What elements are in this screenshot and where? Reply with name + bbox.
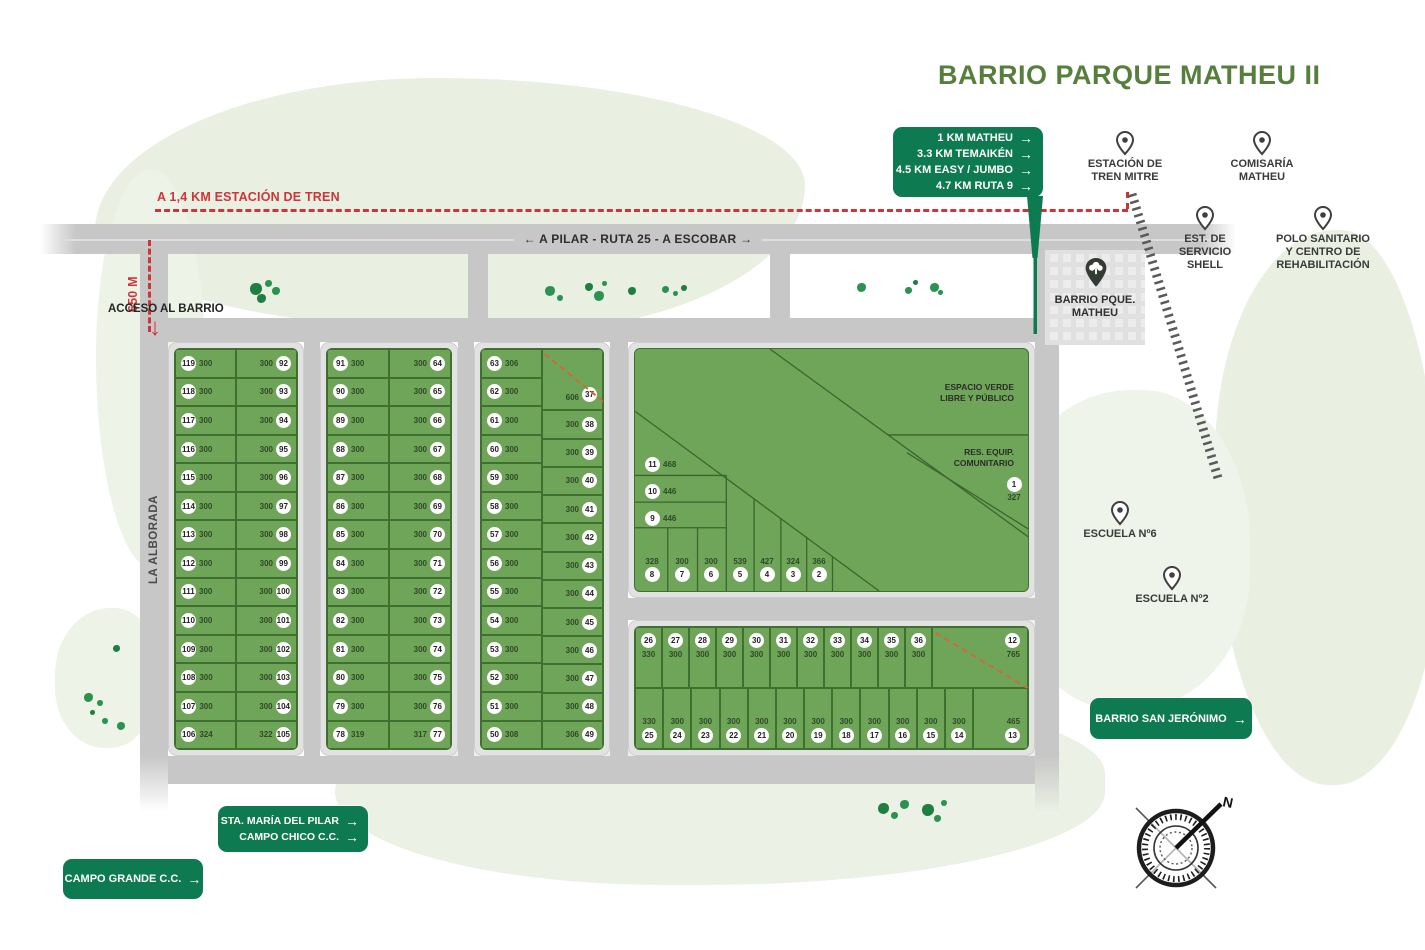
lot-85[interactable]: 85300: [327, 520, 389, 549]
lot-number: 23: [698, 728, 713, 743]
lot-number: 26: [641, 633, 656, 648]
lot-area: 300: [566, 476, 579, 485]
lot-20[interactable]: 30020: [776, 688, 804, 749]
lot-area: 300: [414, 502, 427, 511]
lot-51[interactable]: 51300: [481, 692, 542, 721]
lot-number: 88: [333, 442, 348, 457]
arrow-icon: →: [1019, 178, 1033, 194]
page-title: BARRIO PARQUE MATHEU II: [938, 60, 1321, 91]
lot-number: 53: [487, 642, 502, 657]
lot-area: 300: [260, 445, 273, 454]
badge-campo-grande[interactable]: CAMPO GRANDE C.C.→: [63, 859, 203, 899]
lot-number: 14: [951, 728, 966, 743]
lot-11[interactable]: 11468: [645, 457, 676, 472]
lot-33[interactable]: 33300: [824, 627, 851, 688]
lot-number: 72: [430, 584, 445, 599]
lot-16[interactable]: 30016: [889, 688, 917, 749]
train-distance-line: [155, 209, 1128, 212]
lot-105[interactable]: 322105: [236, 721, 297, 750]
lot-area: 300: [414, 445, 427, 454]
lot-number: 86: [333, 499, 348, 514]
lot-area: 300: [704, 557, 717, 566]
lot-area: 300: [566, 448, 579, 457]
lot-39[interactable]: 30039: [542, 439, 603, 467]
lot-area: 300: [566, 505, 579, 514]
badge-sta-maria-campo-chico[interactable]: STA. MARÍA DEL PILAR→ CAMPO CHICO C.C.→: [218, 806, 368, 852]
lot-number: 39: [582, 445, 597, 460]
lot-44[interactable]: 30044: [542, 580, 603, 608]
lot-area: 300: [727, 717, 740, 726]
lot-area: 300: [755, 717, 768, 726]
lot-number: 44: [582, 586, 597, 601]
lot-59[interactable]: 59300: [481, 463, 542, 492]
lot-114[interactable]: 114300: [175, 492, 236, 521]
lot-66[interactable]: 30066: [389, 406, 451, 435]
lot-110[interactable]: 110300: [175, 606, 236, 635]
lot-number: 111: [181, 584, 196, 599]
connector-road: [770, 252, 790, 322]
inner-top-road: [168, 318, 1035, 342]
lot-76[interactable]: 30076: [389, 692, 451, 721]
lot-74[interactable]: 30074: [389, 635, 451, 664]
lot-number: 60: [487, 442, 502, 457]
lot-12[interactable]: 12765: [932, 627, 1028, 688]
lot-65[interactable]: 30065: [389, 378, 451, 407]
arrow-icon: →: [187, 871, 201, 887]
lot-19[interactable]: 30019: [804, 688, 832, 749]
lot-38[interactable]: 30038: [542, 410, 603, 438]
lot-87[interactable]: 87300: [327, 463, 389, 492]
lot-14[interactable]: 30014: [945, 688, 973, 749]
lot-area: 765: [1007, 650, 1020, 659]
lot-area: 300: [505, 473, 518, 482]
lot-area: 330: [642, 650, 655, 659]
lot-97[interactable]: 30097: [236, 492, 297, 521]
lot-34[interactable]: 34300: [851, 627, 878, 688]
lot-63[interactable]: 63306: [481, 349, 542, 378]
lot-area: 306: [566, 730, 579, 739]
lot-90[interactable]: 90300: [327, 378, 389, 407]
lot-area: 300: [351, 559, 364, 568]
lot-57[interactable]: 57300: [481, 520, 542, 549]
lot-number: 13: [1005, 728, 1020, 743]
lot-number: 64: [430, 356, 445, 371]
lot-number: 12: [1005, 633, 1020, 648]
lot-number: 1: [1007, 477, 1022, 492]
lot-number: 31: [776, 633, 791, 648]
lot-number: 90: [333, 384, 348, 399]
lot-number: 98: [276, 527, 291, 542]
lot-area: 300: [351, 616, 364, 625]
lot-area: 300: [831, 650, 844, 659]
lot-107[interactable]: 107300: [175, 692, 236, 721]
lot-number: 103: [276, 670, 291, 685]
lot-area: 300: [199, 616, 212, 625]
lot-47[interactable]: 30047: [542, 664, 603, 692]
lot-number: 27: [668, 633, 683, 648]
tree-pin-icon: [1081, 256, 1111, 290]
lot-number: 80: [333, 670, 348, 685]
lot-48[interactable]: 30048: [542, 693, 603, 721]
lot-number: 81: [333, 642, 348, 657]
lot-15[interactable]: 30015: [917, 688, 945, 749]
lot-number: 24: [670, 728, 685, 743]
lot-56[interactable]: 56300: [481, 549, 542, 578]
lot-27[interactable]: 27300: [662, 627, 689, 688]
lot-91[interactable]: 91300: [327, 349, 389, 378]
lot-26[interactable]: 26330: [635, 627, 662, 688]
lot-number: 74: [430, 642, 445, 657]
lot-68[interactable]: 30068: [389, 463, 451, 492]
lot-area: 300: [912, 650, 925, 659]
lot-number: 95: [276, 442, 291, 457]
lot-109[interactable]: 109300: [175, 635, 236, 664]
lot-number: 96: [276, 470, 291, 485]
lot-82[interactable]: 82300: [327, 606, 389, 635]
lot-117[interactable]: 117300: [175, 406, 236, 435]
lot-8[interactable]: 3288: [638, 557, 666, 582]
lot-number: 85: [333, 527, 348, 542]
lot-75[interactable]: 30075: [389, 663, 451, 692]
lot-area: 468: [663, 460, 676, 469]
lot-60[interactable]: 60300: [481, 435, 542, 464]
lot-50[interactable]: 50308: [481, 721, 542, 750]
lot-area: 330: [642, 717, 655, 726]
lot-area: 300: [566, 533, 579, 542]
lot-61[interactable]: 61300: [481, 406, 542, 435]
lot-13[interactable]: 46513: [973, 688, 1028, 749]
lot-number: 36: [911, 633, 926, 648]
lot-37[interactable]: 60637: [542, 349, 603, 410]
distance-badge[interactable]: 1 KM MATHEU→ 3.3 KM TEMAIKÉN→ 4.5 KM EAS…: [893, 127, 1043, 197]
lot-112[interactable]: 112300: [175, 549, 236, 578]
lot-area: 300: [351, 473, 364, 482]
lot-number: 32: [803, 633, 818, 648]
lot-area: 427: [760, 557, 773, 566]
lot-100[interactable]: 300100: [236, 578, 297, 607]
lot-number: 77: [430, 727, 445, 742]
lot-42[interactable]: 30042: [542, 523, 603, 551]
lot-area: 300: [414, 673, 427, 682]
lot-25[interactable]: 33025: [635, 688, 663, 749]
lot-area: 300: [804, 650, 817, 659]
lot-116[interactable]: 116300: [175, 435, 236, 464]
lot-83[interactable]: 83300: [327, 578, 389, 607]
lot-number: 43: [582, 558, 597, 573]
map-pin-icon: [1310, 205, 1336, 231]
lot-52[interactable]: 52300: [481, 663, 542, 692]
lot-number: 71: [430, 556, 445, 571]
lot-3[interactable]: 3243: [779, 557, 807, 582]
lot-29[interactable]: 29300: [716, 627, 743, 688]
lot-73[interactable]: 30073: [389, 606, 451, 635]
street-la-alborada: LA ALBORADA: [142, 470, 166, 610]
lot-area: 300: [699, 717, 712, 726]
lot-113[interactable]: 113300: [175, 520, 236, 549]
lot-number: 110: [181, 613, 196, 628]
compass-north-label: N: [1221, 793, 1234, 811]
lot-43[interactable]: 30043: [542, 552, 603, 580]
lot-area: 300: [414, 616, 427, 625]
lot-21[interactable]: 30021: [748, 688, 776, 749]
lot-number: 118: [181, 384, 196, 399]
lot-number: 73: [430, 613, 445, 628]
lot-area: 324: [786, 557, 799, 566]
lot-67[interactable]: 30067: [389, 435, 451, 464]
poi-estacion-tren-mitre[interactable]: ESTACIÓN DETREN MITRE: [1060, 130, 1190, 184]
lot-number: 105: [276, 727, 291, 742]
lot-number: 61: [487, 413, 502, 428]
lot-number: 107: [181, 699, 196, 714]
lot-53[interactable]: 53300: [481, 635, 542, 664]
lot-area: 446: [663, 487, 676, 496]
lot-55[interactable]: 55300: [481, 578, 542, 607]
lot-7[interactable]: 3007: [668, 557, 696, 582]
lot-58[interactable]: 58300: [481, 492, 542, 521]
lot-number: 57: [487, 527, 502, 542]
arrow-icon: →: [1019, 130, 1033, 146]
access-label: ACCESO AL BARRIO: [108, 303, 224, 315]
lot-area: 300: [351, 416, 364, 425]
lot-area: 300: [351, 587, 364, 596]
lot-24[interactable]: 30024: [663, 688, 691, 749]
lot-area: 300: [696, 650, 709, 659]
lot-72[interactable]: 30072: [389, 578, 451, 607]
lot-1[interactable]: 1327: [999, 477, 1029, 502]
lot-area: 300: [259, 673, 272, 682]
poi-polo-sanitario[interactable]: POLO SANITARIOY CENTRO DEREHABILITACIÓN: [1237, 205, 1409, 272]
lot-area: 300: [566, 420, 579, 429]
lot-area: 300: [505, 530, 518, 539]
lot-23[interactable]: 30023: [691, 688, 719, 749]
lot-number: 119: [181, 356, 196, 371]
main-road-label: ← A PILAR - RUTA 25 - A ESCOBAR →: [514, 232, 763, 246]
lot-number: 93: [276, 384, 291, 399]
lot-area: 300: [505, 445, 518, 454]
lot-119[interactable]: 119300: [175, 349, 236, 378]
lot-94[interactable]: 30094: [236, 406, 297, 435]
lot-9[interactable]: 9446: [645, 511, 676, 526]
lot-number: 11: [645, 457, 660, 472]
lot-area: 300: [723, 650, 736, 659]
inner-vertical-road: [458, 320, 474, 778]
inner-vertical-road: [304, 320, 320, 778]
lot-number: 65: [430, 384, 445, 399]
lot-area: 300: [199, 445, 212, 454]
poi-comisaria-matheu[interactable]: COMISARÍAMATHEU: [1197, 130, 1327, 184]
lot-78[interactable]: 78319: [327, 721, 389, 750]
lot-69[interactable]: 30069: [389, 492, 451, 521]
lot-area: 300: [505, 702, 518, 711]
lot-80[interactable]: 80300: [327, 663, 389, 692]
lot-number: 67: [430, 442, 445, 457]
lot-area: 300: [199, 559, 212, 568]
lot-99[interactable]: 30099: [236, 549, 297, 578]
lot-70[interactable]: 30070: [389, 520, 451, 549]
site-plan-map: BARRIO PARQUE MATHEU II ← A PILAR - RUTA…: [0, 0, 1425, 950]
lot-number: 84: [333, 556, 348, 571]
lot-number: 114: [181, 499, 196, 514]
lot-number: 4: [760, 567, 775, 582]
lot-block-3: 6330662300613006030059300583005730056300…: [474, 342, 610, 756]
lot-number: 3: [786, 567, 801, 582]
lot-area: 300: [669, 650, 682, 659]
lot-64[interactable]: 30064: [389, 349, 451, 378]
lot-area: 465: [1007, 717, 1020, 726]
lot-28[interactable]: 28300: [689, 627, 716, 688]
lot-number: 117: [181, 413, 196, 428]
lot-area: 446: [663, 514, 676, 523]
lot-54[interactable]: 54300: [481, 606, 542, 635]
lot-number: 70: [430, 527, 445, 542]
lot-area: 300: [414, 587, 427, 596]
lot-102[interactable]: 300102: [236, 635, 297, 664]
lot-45[interactable]: 30045: [542, 608, 603, 636]
poi-escuela-6[interactable]: ESCUELA Nº6: [1055, 500, 1185, 541]
lot-118[interactable]: 118300: [175, 378, 236, 407]
lot-77[interactable]: 31777: [389, 721, 451, 750]
lot-101[interactable]: 300101: [236, 606, 297, 635]
arrow-icon: →: [345, 813, 359, 829]
lot-number: 51: [487, 699, 502, 714]
lot-32[interactable]: 32300: [797, 627, 824, 688]
lot-block-south: 2633027300283002930030300313003230033300…: [628, 620, 1035, 756]
lot-108[interactable]: 108300: [175, 663, 236, 692]
lot-block-2: 9130090300893008830087300863008530084300…: [320, 342, 458, 756]
lot-area: 300: [259, 587, 272, 596]
compass-rose: N: [1118, 790, 1236, 908]
lot-89[interactable]: 89300: [327, 406, 389, 435]
lot-number: 91: [333, 356, 348, 371]
lot-area: 306: [505, 359, 518, 368]
lot-number: 10: [645, 484, 660, 499]
lot-number: 7: [675, 567, 690, 582]
lot-46[interactable]: 30046: [542, 636, 603, 664]
badge-barrio-san-jeronimo[interactable]: BARRIO SAN JERÓNIMO→: [1090, 698, 1252, 739]
lot-95[interactable]: 30095: [236, 435, 297, 464]
lot-number: 8: [645, 567, 660, 582]
lot-area: 300: [505, 416, 518, 425]
lot-area: 300: [351, 645, 364, 654]
lot-number: 19: [811, 728, 826, 743]
lot-area: 300: [777, 650, 790, 659]
lot-5[interactable]: 5395: [726, 557, 754, 582]
lot-number: 17: [867, 728, 882, 743]
map-pin-icon: [1112, 130, 1138, 156]
lot-number: 92: [276, 356, 291, 371]
tree-icon: [938, 290, 943, 295]
lot-36[interactable]: 36300: [905, 627, 932, 688]
lot-98[interactable]: 30098: [236, 520, 297, 549]
lot-area: 606: [566, 393, 579, 402]
lot-35[interactable]: 35300: [878, 627, 905, 688]
lot-number: 49: [582, 727, 597, 742]
lot-area: 300: [260, 530, 273, 539]
lot-18[interactable]: 30018: [832, 688, 860, 749]
lot-number: 109: [181, 642, 196, 657]
lot-79[interactable]: 79300: [327, 692, 389, 721]
lot-number: 100: [276, 584, 291, 599]
lot-area: 300: [199, 587, 212, 596]
lot-area: 308: [505, 730, 518, 739]
lot-6[interactable]: 3006: [697, 557, 725, 582]
lot-81[interactable]: 81300: [327, 635, 389, 664]
lot-area: 300: [858, 650, 871, 659]
lot-number: 101: [276, 613, 291, 628]
lot-area: 300: [414, 559, 427, 568]
lot-62[interactable]: 62300: [481, 378, 542, 407]
lot-area: 300: [199, 530, 212, 539]
lot-area: 300: [351, 673, 364, 682]
lot-area: 319: [351, 730, 364, 739]
lot-number: 76: [430, 699, 445, 714]
arrow-icon: →: [345, 829, 359, 845]
lot-92[interactable]: 30092: [236, 349, 297, 378]
tree-icon: [857, 283, 866, 292]
lot-area: 300: [885, 650, 898, 659]
lot-93[interactable]: 30093: [236, 378, 297, 407]
lot-number: 21: [754, 728, 769, 743]
lot-number: 37: [582, 387, 597, 402]
lot-area: 300: [199, 702, 212, 711]
lot-number: 6: [704, 567, 719, 582]
lot-area: 300: [505, 645, 518, 654]
arrow-icon: →: [1019, 146, 1033, 162]
lot-84[interactable]: 84300: [327, 549, 389, 578]
lot-104[interactable]: 300104: [236, 692, 297, 721]
lot-30[interactable]: 30300: [743, 627, 770, 688]
lot-area: 300: [505, 587, 518, 596]
lot-block-1: 1193001183001173001163001153001143001133…: [168, 342, 304, 756]
tree-icon: [913, 280, 918, 285]
lot-103[interactable]: 300103: [236, 663, 297, 692]
lot-49[interactable]: 30649: [542, 721, 603, 749]
lot-area: 300: [505, 502, 518, 511]
lot-115[interactable]: 115300: [175, 463, 236, 492]
lot-area: 300: [414, 645, 427, 654]
lot-area: 300: [260, 387, 273, 396]
lot-number: 115: [181, 470, 196, 485]
lot-number: 45: [582, 615, 597, 630]
lot-71[interactable]: 30071: [389, 549, 451, 578]
lot-number: 78: [333, 727, 348, 742]
lot-number: 94: [276, 413, 291, 428]
tree-icon: [905, 287, 912, 294]
lot-area: 300: [566, 702, 579, 711]
lot-40[interactable]: 30040: [542, 467, 603, 495]
lot-number: 63: [487, 356, 502, 371]
lot-4[interactable]: 4274: [753, 557, 781, 582]
lot-area: 300: [750, 650, 763, 659]
lot-area: 300: [868, 717, 881, 726]
lot-area: 300: [259, 645, 272, 654]
lot-31[interactable]: 31300: [770, 627, 797, 688]
lot-17[interactable]: 30017: [860, 688, 888, 749]
lot-88[interactable]: 88300: [327, 435, 389, 464]
lot-111[interactable]: 111300: [175, 578, 236, 607]
lot-number: 46: [582, 643, 597, 658]
poi-escuela-2[interactable]: ESCUELA Nº2: [1107, 565, 1237, 606]
lot-10[interactable]: 10446: [645, 484, 676, 499]
lot-41[interactable]: 30041: [542, 495, 603, 523]
lot-86[interactable]: 86300: [327, 492, 389, 521]
barrio-matheu-square[interactable]: BARRIO PQUE.MATHEU: [1045, 250, 1145, 345]
lot-area: 300: [351, 359, 364, 368]
lot-22[interactable]: 30022: [720, 688, 748, 749]
lot-96[interactable]: 30096: [236, 463, 297, 492]
lot-106[interactable]: 106324: [175, 721, 236, 750]
lot-2[interactable]: 3662: [805, 557, 833, 582]
